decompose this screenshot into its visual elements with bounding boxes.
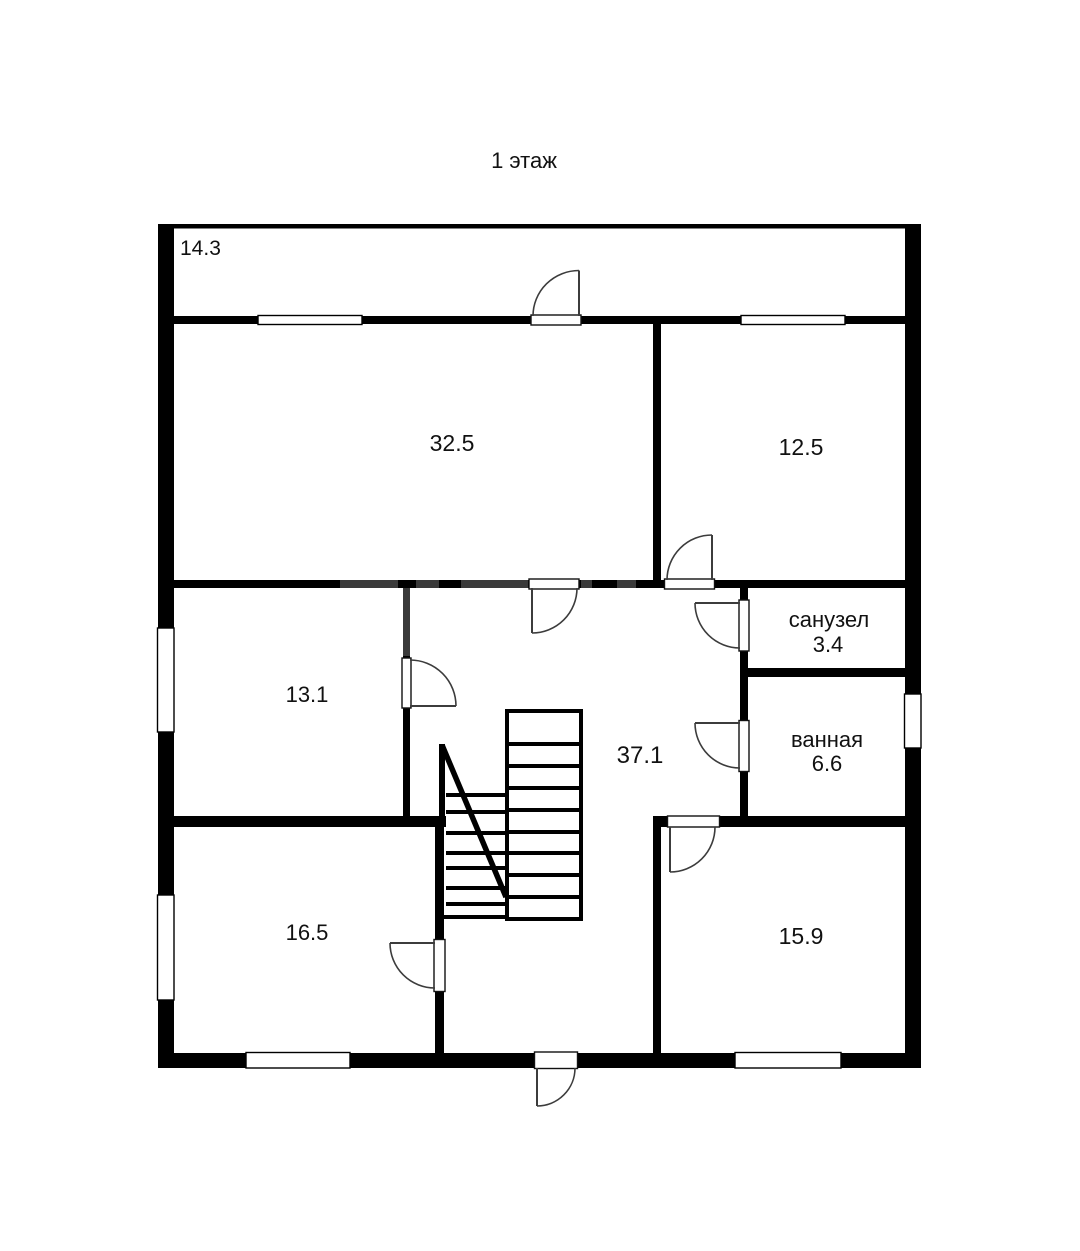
svg-text:32.5: 32.5: [430, 430, 475, 456]
svg-text:37.1: 37.1: [617, 742, 664, 769]
svg-text:15.9: 15.9: [779, 923, 824, 949]
svg-text:6.6: 6.6: [812, 751, 843, 776]
svg-text:14.3: 14.3: [180, 237, 221, 260]
svg-text:санузел: санузел: [789, 607, 870, 632]
svg-text:3.4: 3.4: [813, 632, 844, 657]
svg-text:ванная: ванная: [791, 727, 863, 752]
svg-text:16.5: 16.5: [286, 920, 329, 945]
svg-text:1 этаж: 1 этаж: [491, 148, 557, 173]
svg-text:12.5: 12.5: [779, 434, 824, 460]
svg-text:13.1: 13.1: [286, 682, 329, 707]
